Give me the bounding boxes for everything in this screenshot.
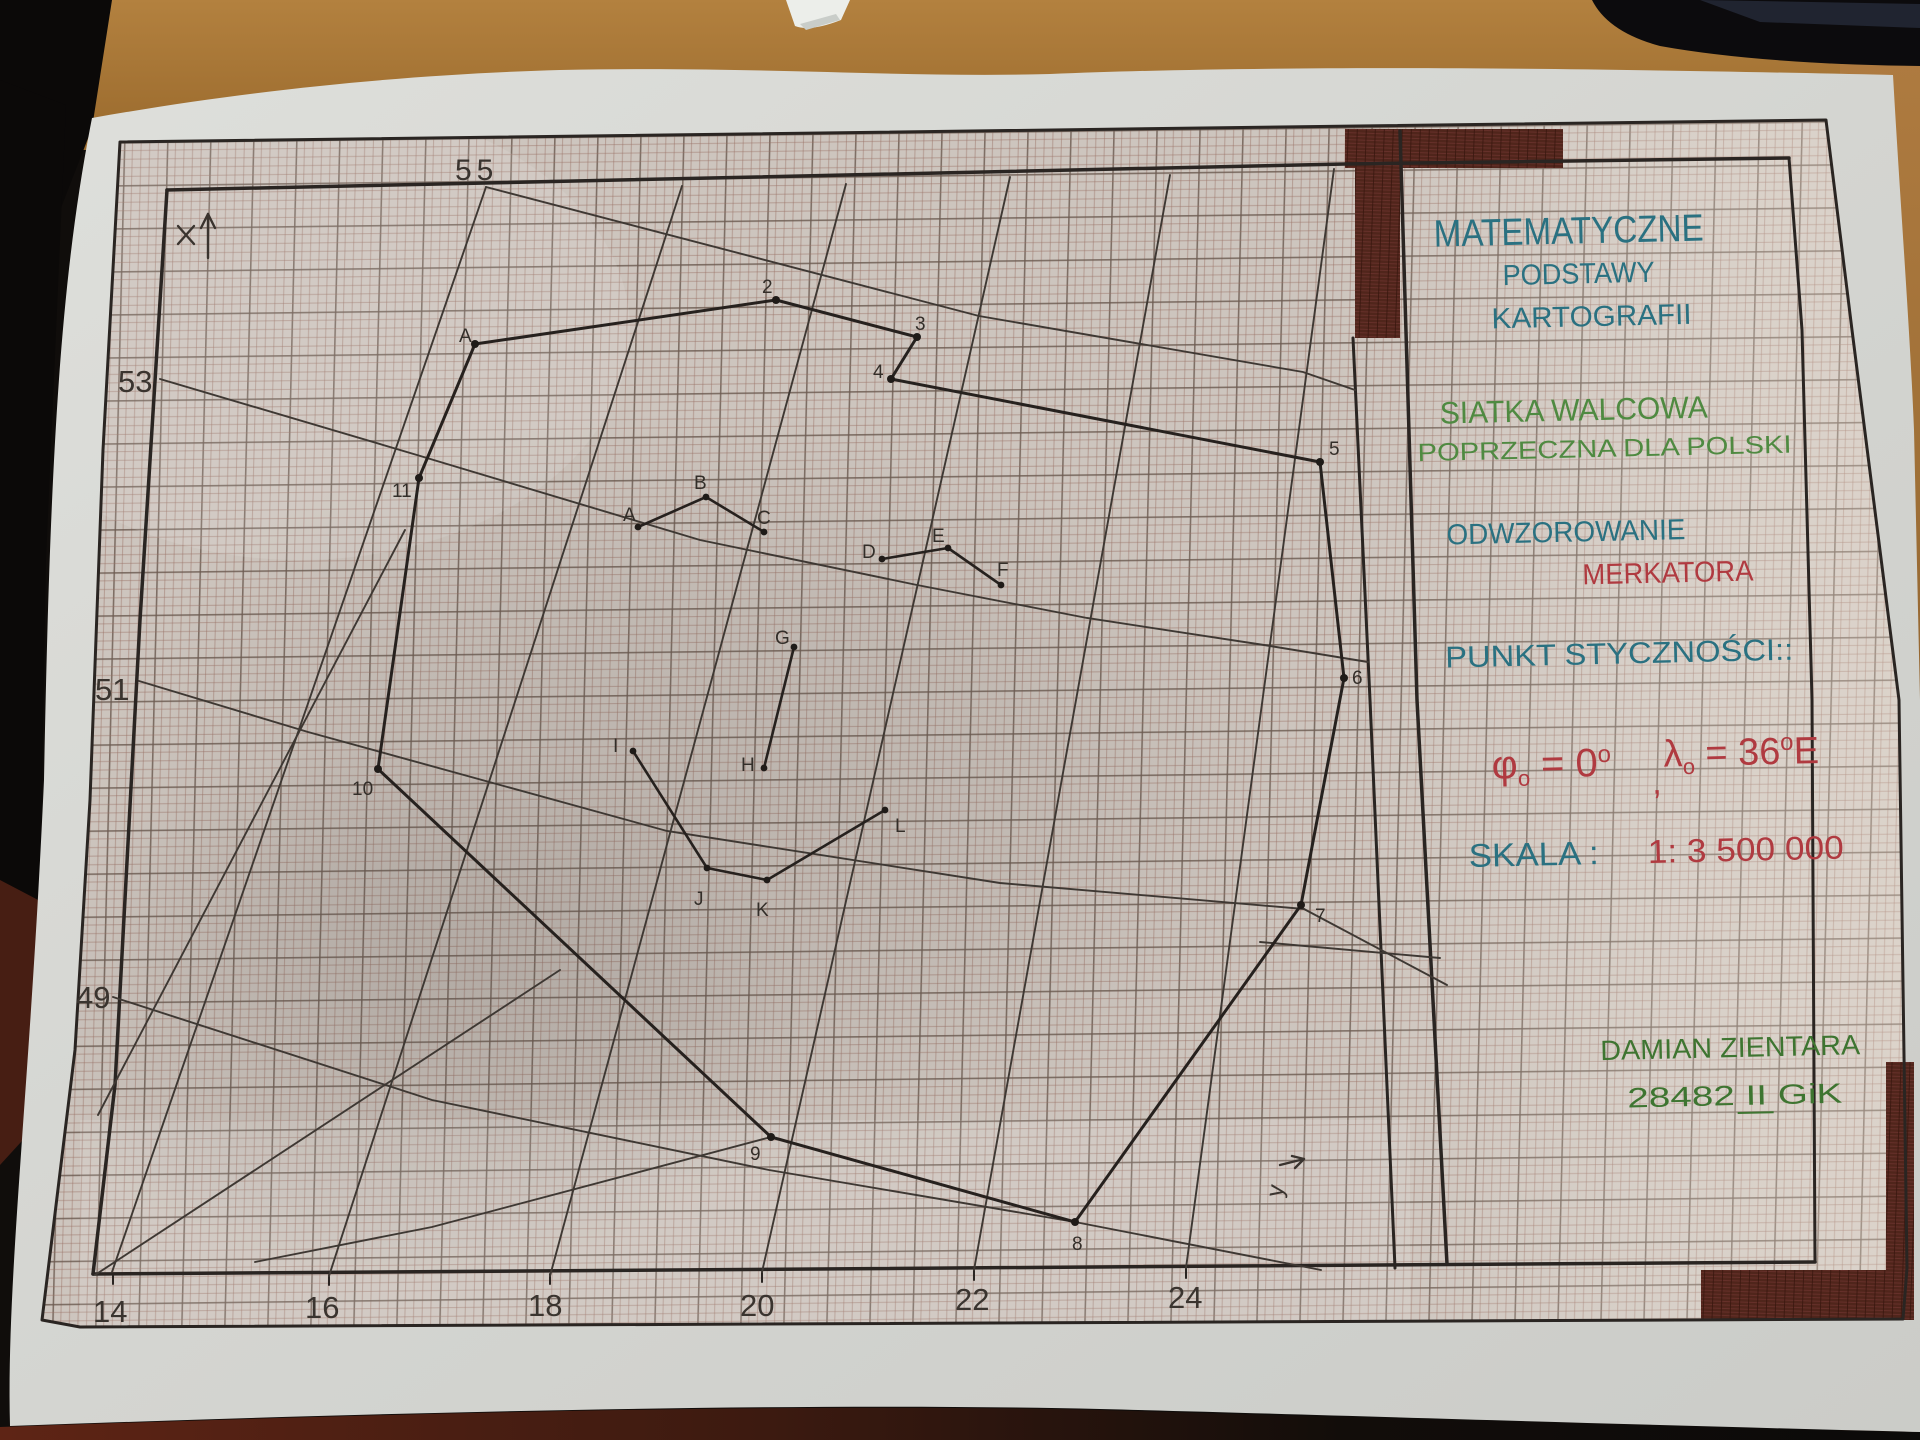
svg-text:SIATKA WALCOWA: SIATKA WALCOWA (1439, 390, 1708, 431)
svg-text:2: 2 (762, 277, 773, 298)
svg-text:I: I (613, 736, 618, 757)
svg-text:L: L (895, 816, 906, 837)
svg-text:A: A (459, 326, 472, 347)
svg-text:J: J (694, 889, 704, 910)
svg-text:F: F (997, 560, 1009, 581)
svg-text:3: 3 (915, 314, 926, 335)
svg-text:φo = 0o: φo = 0o (1491, 741, 1611, 792)
svg-text:7: 7 (1315, 906, 1326, 927)
svg-text:24: 24 (1168, 1280, 1202, 1315)
svg-text:14: 14 (93, 1294, 127, 1329)
svg-text:6: 6 (1352, 668, 1363, 689)
svg-text:9: 9 (750, 1144, 761, 1165)
svg-text:11: 11 (392, 481, 412, 502)
svg-text:10: 10 (352, 779, 373, 800)
svg-text:KARTOGRAFII: KARTOGRAFII (1491, 299, 1692, 336)
svg-text:D: D (862, 542, 876, 563)
svg-text:C: C (757, 508, 771, 529)
svg-text:SKALA :: SKALA : (1468, 834, 1599, 874)
svg-text:5: 5 (1329, 439, 1340, 460)
svg-text:49: 49 (76, 980, 110, 1015)
svg-text:8: 8 (1072, 1234, 1083, 1255)
svg-text:18: 18 (528, 1288, 562, 1323)
svg-text:B: B (694, 473, 707, 494)
svg-text:MERKATORA: MERKATORA (1582, 556, 1754, 592)
svg-text:H: H (741, 755, 755, 776)
svg-text:22: 22 (955, 1282, 989, 1317)
svg-text:ODWZOROWANIE: ODWZOROWANIE (1446, 514, 1686, 551)
svg-text:51: 51 (95, 672, 129, 707)
svg-text:MATEMATYCZNE: MATEMATYCZNE (1433, 208, 1704, 256)
svg-text:55: 55 (455, 154, 498, 187)
svg-text:K: K (756, 900, 769, 921)
svg-text:DAMIAN ZIENTARA: DAMIAN ZIENTARA (1600, 1029, 1861, 1066)
svg-text:28482 II GiK: 28482 II GiK (1627, 1078, 1843, 1114)
svg-text:20: 20 (740, 1288, 774, 1323)
svg-text:16: 16 (305, 1290, 339, 1325)
svg-text:4: 4 (873, 362, 884, 383)
svg-text:53: 53 (118, 364, 152, 399)
svg-text:G: G (775, 628, 790, 649)
svg-text:A: A (623, 505, 636, 526)
svg-text:,: , (1652, 764, 1662, 802)
svg-text:E: E (932, 526, 945, 547)
svg-text:1: 3 500 000: 1: 3 500 000 (1647, 829, 1844, 870)
svg-text:PODSTAWY: PODSTAWY (1502, 257, 1655, 292)
